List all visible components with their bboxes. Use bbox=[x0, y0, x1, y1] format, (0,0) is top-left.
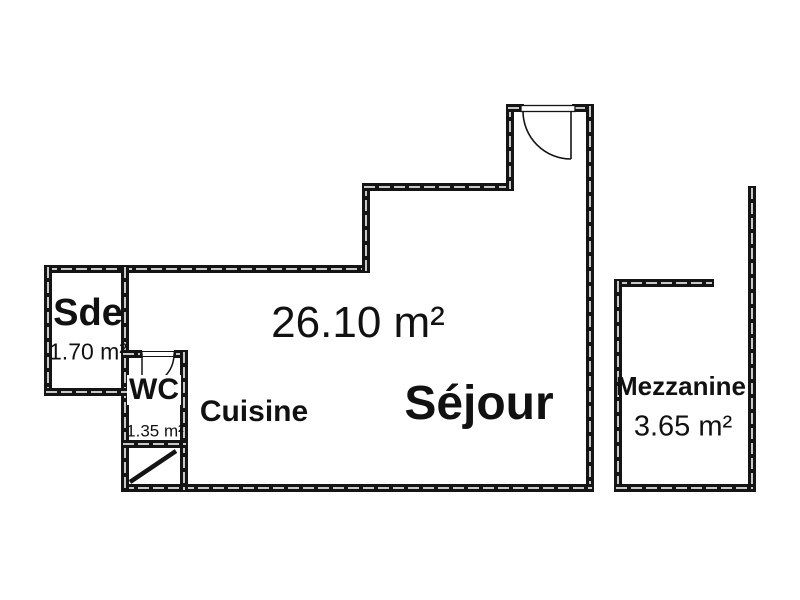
room-area-sejour: 26.10 m² bbox=[271, 301, 445, 345]
room-area-sde: 1.70 m² bbox=[49, 341, 127, 364]
room-label-sejour: Séjour bbox=[404, 380, 553, 428]
floorplan-canvas: Sde 1.70 m² WC 1.35 m² Cuisine 26.10 m² … bbox=[0, 0, 800, 600]
entry-door-icon bbox=[521, 106, 575, 160]
diagonal-slash-icon bbox=[130, 451, 176, 482]
room-label-sde: Sde bbox=[53, 294, 123, 332]
room-label-mezzanine: Mezzanine bbox=[616, 373, 746, 399]
room-area-wc: 1.35 m² bbox=[126, 423, 184, 440]
room-label-cuisine: Cuisine bbox=[200, 397, 308, 427]
room-area-mezzanine: 3.65 m² bbox=[634, 413, 732, 442]
room-label-wc: WC bbox=[127, 375, 181, 405]
